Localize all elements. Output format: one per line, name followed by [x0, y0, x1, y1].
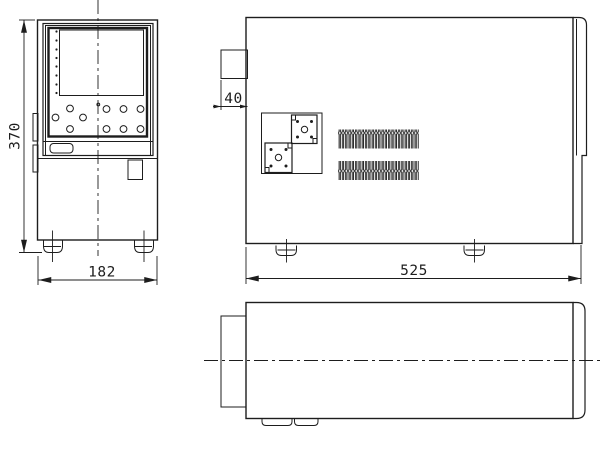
led-dot — [55, 57, 57, 59]
panel-button — [80, 114, 87, 121]
arrowhead — [214, 105, 222, 109]
screw-dot — [296, 120, 299, 123]
panel-button — [137, 126, 144, 133]
screw-dot — [310, 136, 313, 139]
bottom-tab — [262, 419, 292, 426]
connector-hole — [301, 126, 307, 132]
panel-button — [120, 106, 127, 113]
function-button-cluster — [103, 106, 144, 133]
technical-drawing: 370 182 — [0, 0, 610, 453]
plate-notch — [313, 139, 317, 144]
vent-grille — [338, 161, 419, 180]
panel-button — [103, 126, 110, 133]
screw-dot — [270, 148, 273, 151]
front-case-outline — [38, 20, 158, 240]
plate-notch — [292, 116, 296, 121]
bottom-view — [204, 303, 602, 426]
panel-button — [137, 106, 144, 113]
vent-grille — [338, 130, 419, 149]
led-dot — [55, 30, 57, 32]
dimension-front-width: 182 — [38, 256, 157, 285]
plate-notch — [288, 144, 292, 149]
channel-led-column — [55, 30, 57, 94]
screw-dot — [270, 165, 273, 168]
dimension-label-bezel-depth: 40 — [224, 91, 242, 107]
screw-dot — [310, 120, 313, 123]
screw-dot — [296, 136, 299, 139]
dimension-label-depth: 525 — [400, 263, 428, 279]
side-view — [221, 18, 587, 263]
dimension-bezel-depth: 40 — [213, 80, 248, 110]
connector-panel — [262, 113, 323, 174]
led-dot — [55, 92, 57, 94]
bottom-tab — [295, 419, 319, 426]
panel-button — [67, 105, 74, 112]
led-dot — [55, 74, 57, 76]
panel-button — [67, 126, 74, 133]
connector-hole — [275, 154, 281, 160]
front-view — [33, 0, 158, 262]
door-lock — [128, 160, 143, 180]
display-window — [60, 30, 144, 96]
led-dot — [55, 65, 57, 67]
panel-button — [52, 114, 59, 121]
nav-button-cluster — [52, 105, 86, 132]
plate-notch — [265, 168, 269, 173]
led-dot — [55, 39, 57, 41]
screw-dot — [285, 148, 288, 151]
side-feet — [276, 239, 485, 263]
led-dot — [55, 83, 57, 85]
side-front-bezel — [573, 18, 587, 244]
panel-button — [103, 106, 110, 113]
front-feet — [44, 231, 154, 263]
rear-protrusion — [221, 50, 248, 79]
connector-plate-lower — [265, 143, 292, 173]
panel-button — [120, 126, 127, 133]
dimension-label-height: 370 — [8, 122, 24, 150]
led-dot — [55, 48, 57, 50]
nameplate — [50, 144, 73, 154]
connector-plate-upper — [292, 115, 318, 144]
dimension-label-width: 182 — [88, 265, 116, 281]
rear-protrusion — [221, 316, 246, 407]
screw-dot — [285, 165, 288, 168]
